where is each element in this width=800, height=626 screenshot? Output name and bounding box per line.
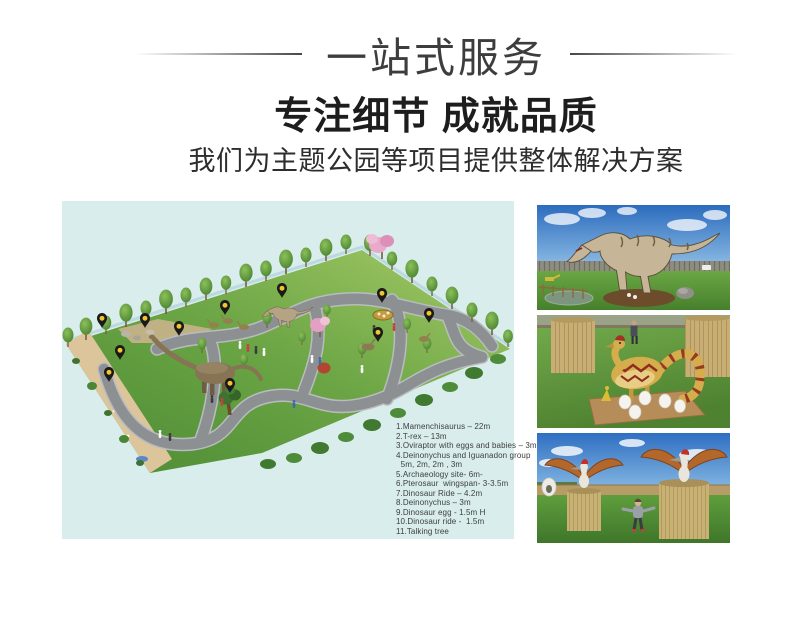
legend-item: 6.Pterosaur wingspan- 3-3.5m xyxy=(396,479,537,489)
mulch-mound xyxy=(603,289,675,307)
dinosaur-nest xyxy=(373,310,393,320)
park-plan-image: 1.Mamenchisaurus – 22m2.T-rex – 13m3.Ovi… xyxy=(62,201,514,539)
page-title: 一站式服务 xyxy=(326,24,546,84)
legend-item: 7.Dinosaur Ride – 4.2m xyxy=(396,489,537,499)
legend-item: 3.Oviraptor with eggs and babies – 3m xyxy=(396,441,537,451)
legend-item: 4.Deinonychus and Iguanadon group xyxy=(396,451,537,461)
legend-item: 11.Talking tree xyxy=(396,527,537,537)
pedestal-left xyxy=(567,488,601,531)
pedestal-right xyxy=(659,479,709,539)
legend-item: 5.Archaeology site- 6m- xyxy=(396,470,537,480)
pond xyxy=(545,291,593,305)
park-legend: 1.Mamenchisaurus – 22m2.T-rex – 13m3.Ovi… xyxy=(396,422,537,536)
wood-cylinder-left xyxy=(551,317,595,373)
white-van xyxy=(702,265,711,270)
legend-item: 2.T-rex – 13m xyxy=(396,432,537,442)
legend-item: 5m, 2m, 2m , 3m xyxy=(396,460,537,470)
rock-highlight xyxy=(678,288,688,294)
tagline: 我们为主题公园等项目提供整体解决方案 xyxy=(60,139,800,178)
wood-cylinder-right xyxy=(684,315,730,377)
egg-sculpture xyxy=(542,478,556,496)
title-divider-right xyxy=(570,53,737,55)
title-row: 一站式服务 xyxy=(60,29,800,79)
lamb xyxy=(633,295,637,299)
photo-oviraptor xyxy=(537,315,730,428)
legend-item: 8.Deinonychus – 3m xyxy=(396,498,537,508)
photo-pterosaur xyxy=(537,433,730,543)
lamb xyxy=(627,293,631,297)
legend-item: 9.Dinosaur egg - 1.5m H xyxy=(396,508,537,518)
photo-trex xyxy=(537,205,730,310)
legend-item: 1.Mamenchisaurus – 22m xyxy=(396,422,537,432)
subtitle: 专注细节 成就品质 xyxy=(60,85,800,140)
legend-item: 10.Dinosaur ride - 1.5m xyxy=(396,517,537,527)
title-divider-left xyxy=(135,53,302,55)
